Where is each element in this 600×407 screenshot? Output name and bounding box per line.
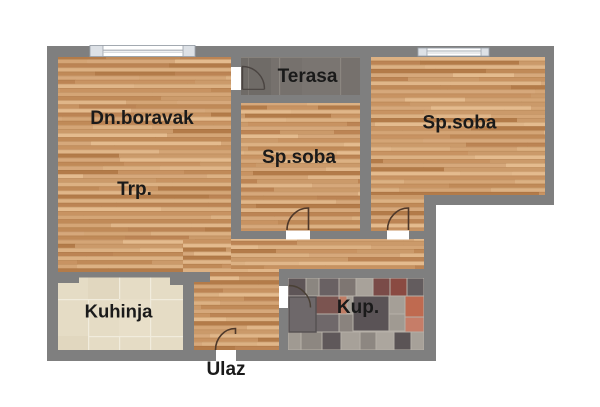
svg-text:Terasa: Terasa [278, 66, 338, 87]
svg-text:Ulaz: Ulaz [206, 359, 245, 380]
svg-text:Trp.: Trp. [117, 179, 152, 200]
svg-text:Kuhinja: Kuhinja [85, 301, 154, 322]
svg-text:Sp.soba: Sp.soba [262, 147, 336, 168]
svg-text:Kup.: Kup. [337, 297, 379, 318]
svg-text:Dn.boravak: Dn.boravak [90, 108, 194, 129]
svg-text:Sp.soba: Sp.soba [423, 113, 497, 134]
